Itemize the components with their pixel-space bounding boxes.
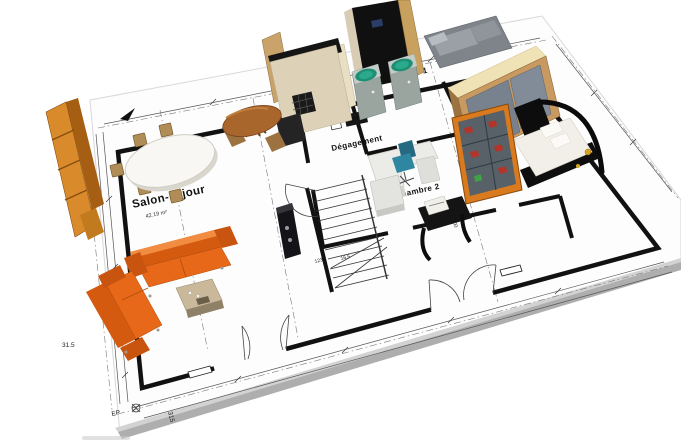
bed-lamp [576, 164, 580, 168]
dim-left: 31.5 [62, 342, 75, 349]
bed-lamp [585, 149, 591, 155]
floorplan-render: Cuisine Salon-séjour 42.19 m² Dégagement… [0, 0, 681, 446]
floorplan-canvas: Cuisine Salon-séjour 42.19 m² Dégagement… [0, 0, 681, 446]
watermark [82, 436, 130, 440]
